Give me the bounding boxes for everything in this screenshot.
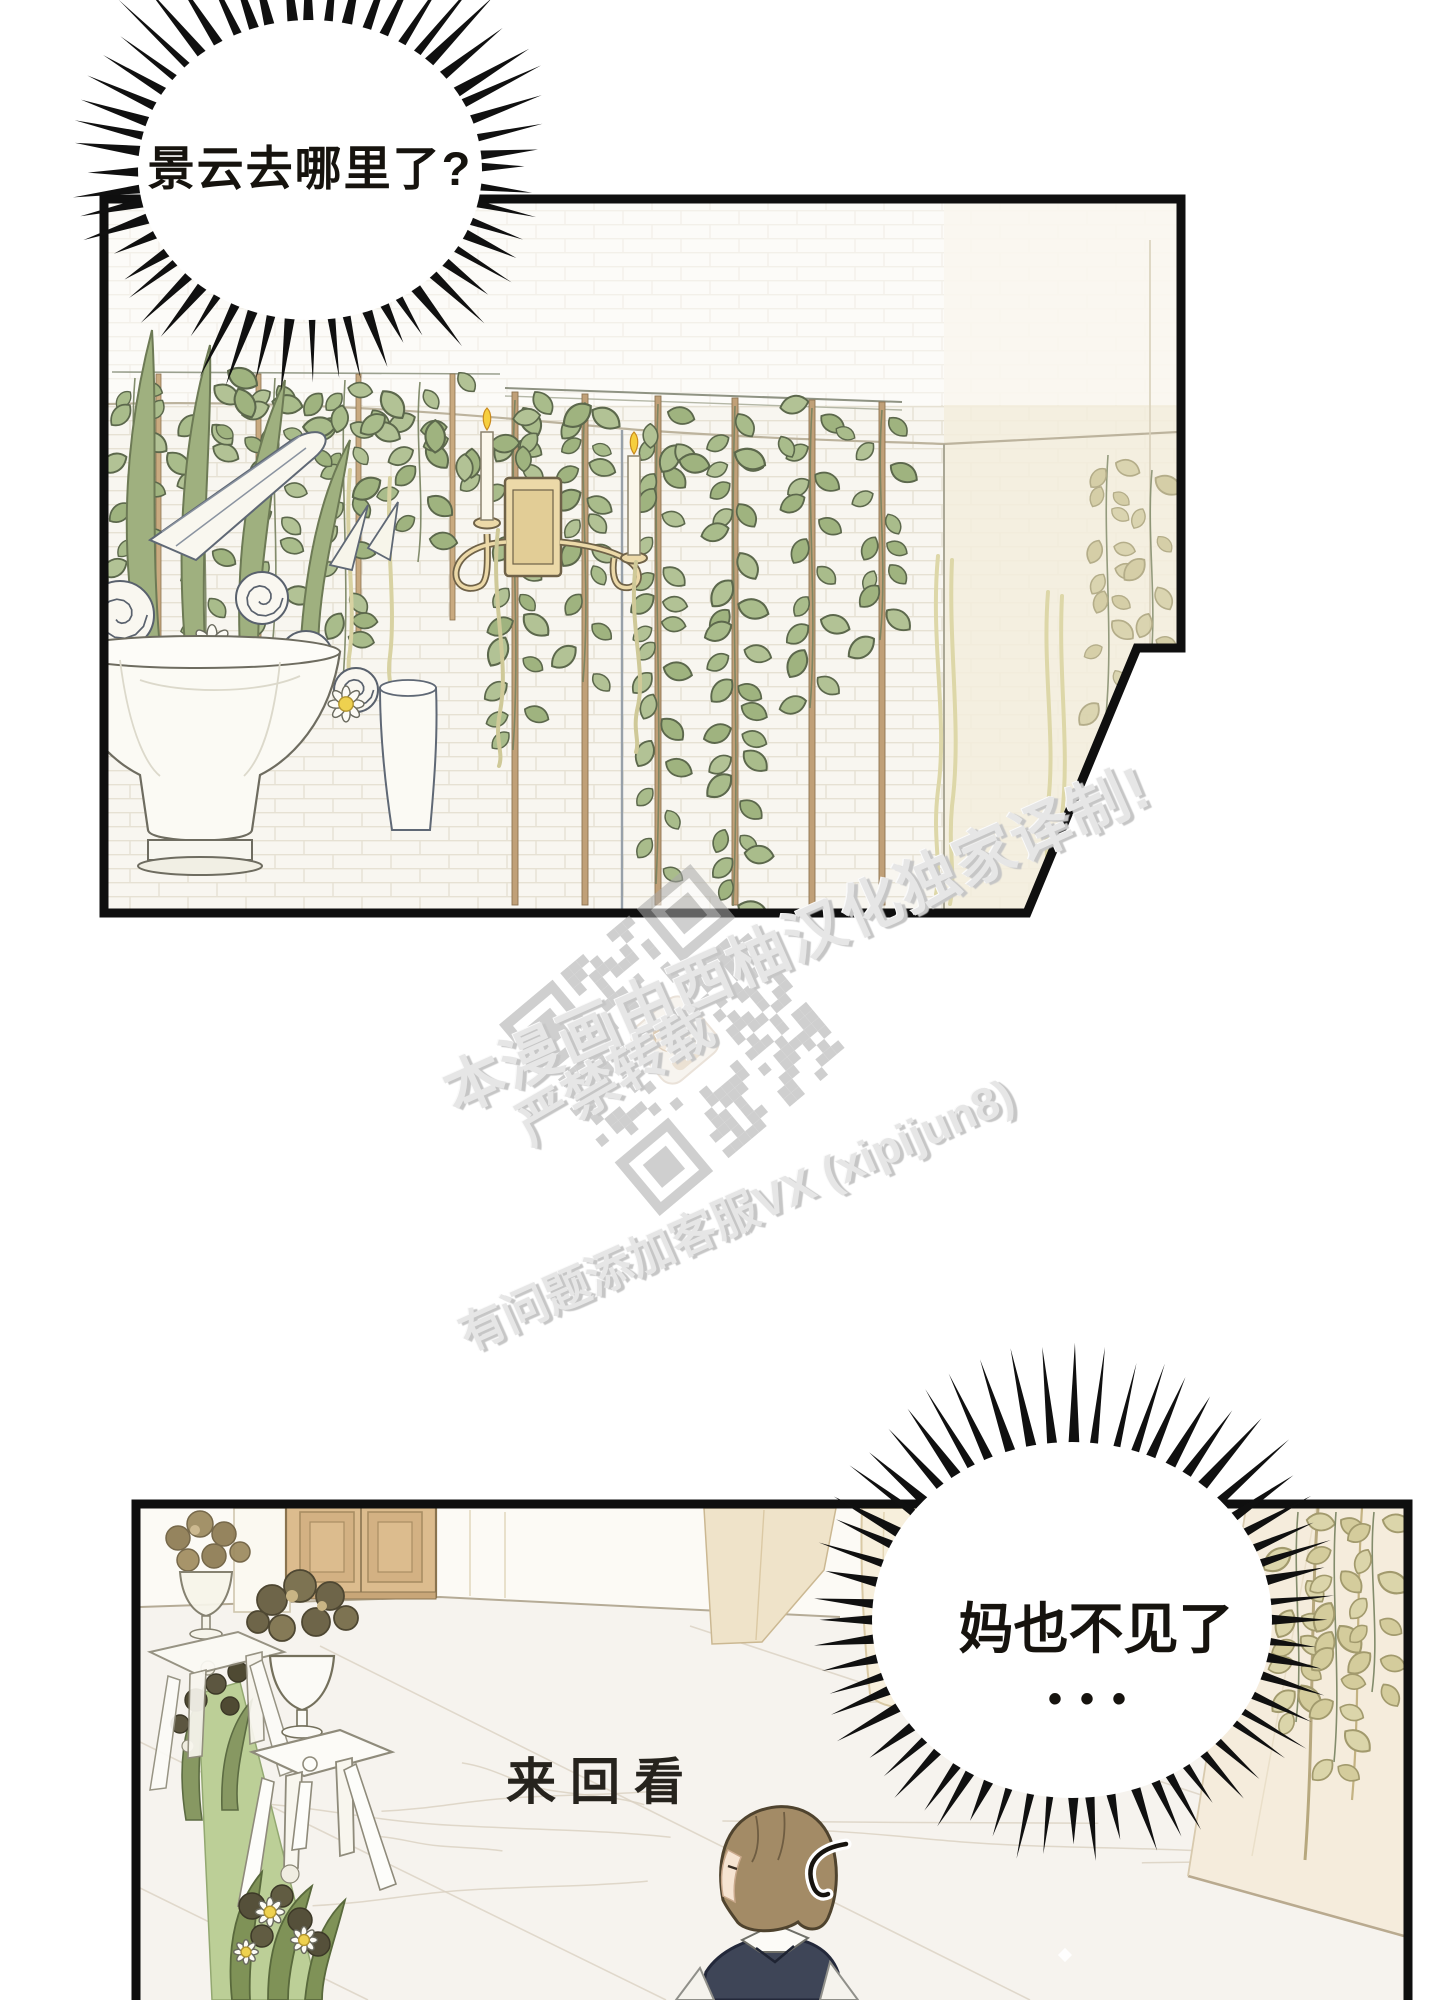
bubble2-text: 妈也不见了 ••• bbox=[878, 1598, 1314, 1715]
candle bbox=[481, 432, 493, 520]
bubble2-line1: 妈也不见了 bbox=[878, 1598, 1314, 1661]
bubble1-text: 景云去哪里了? bbox=[120, 142, 500, 196]
sfx-text: 来回看 bbox=[506, 1742, 698, 1814]
bubble2-ellipsis: ••• bbox=[878, 1683, 1314, 1715]
candle bbox=[628, 456, 640, 555]
hair bbox=[721, 1807, 837, 1931]
comic-page: 本漫画由西柚汉化独家译制! 严禁转载 有问题添加客服VX (xipijun8) … bbox=[0, 0, 1440, 2000]
side-vase bbox=[380, 688, 437, 830]
